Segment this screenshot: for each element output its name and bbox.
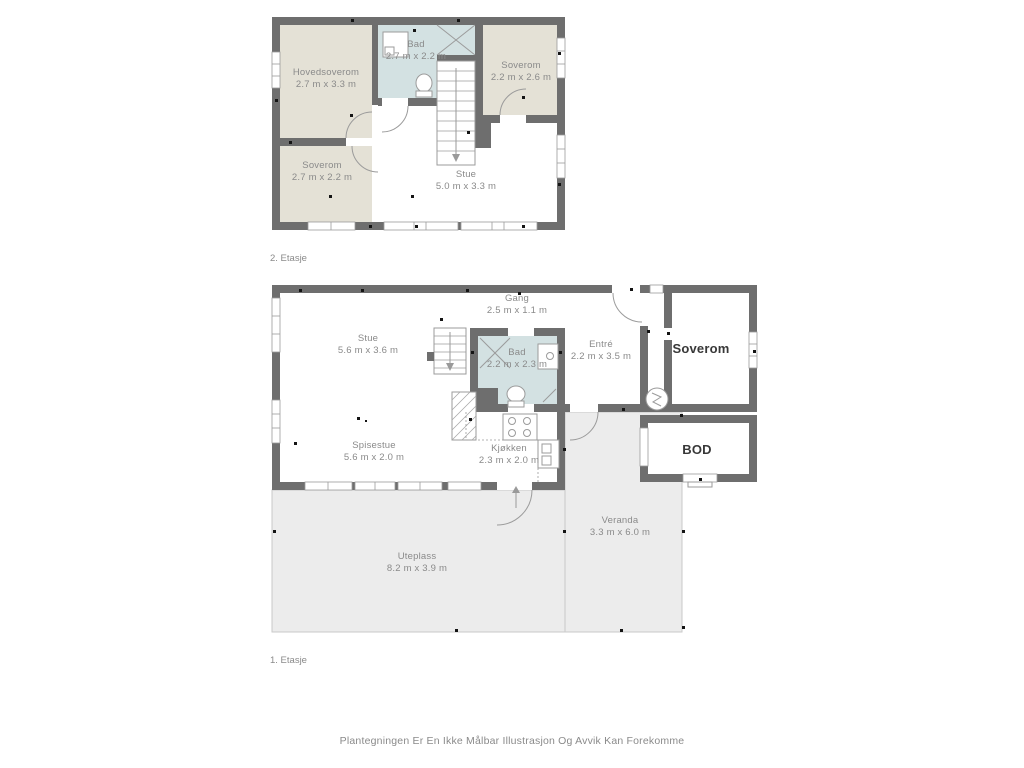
toilet-icon (416, 74, 432, 97)
floorplan-page: Hovedsoverom 2.7 m x 3.3 m Bad 2.7 m x 2… (0, 0, 1024, 768)
room-label-soverom-ne: Soverom 2.2 m x 2.6 m (491, 60, 551, 84)
room-label-kjokken: Kjøkken 2.3 m x 2.0 m (479, 443, 539, 467)
stairs-icon (437, 61, 475, 165)
room-label-entre: Entré 2.2 m x 3.5 m (571, 339, 631, 363)
room-label-bad-2: Bad 2.7 m x 2.2 m (386, 39, 446, 63)
room-soverom-sw (280, 146, 372, 222)
room-label-spisestue: Spisestue 5.6 m x 2.0 m (344, 440, 404, 464)
floorplan-graphics (0, 0, 1024, 768)
room-label-soverom-1: Soverom (672, 342, 729, 356)
sink-icon (538, 440, 559, 468)
room-label-gang: Gang 2.5 m x 1.1 m (487, 293, 547, 317)
room-label-bod: BOD (682, 443, 712, 457)
floor-caption-2: 2. Etasje (270, 253, 307, 264)
room-label-soverom-sw: Soverom 2.7 m x 2.2 m (292, 160, 352, 184)
floor-caption-1: 1. Etasje (270, 655, 307, 666)
room-label-bad-1: Bad 2.2 m x 2.3 m (487, 347, 547, 371)
room-label-veranda: Veranda 3.3 m x 6.0 m (590, 515, 650, 539)
room-label-uteplass: Uteplass 8.2 m x 3.9 m (387, 551, 447, 575)
room-label-hovedsoverom: Hovedsoverom 2.7 m x 3.3 m (293, 67, 359, 91)
hatch-area (452, 392, 476, 440)
disclaimer-text: Plantegningen Er En Ikke Målbar Illustra… (0, 735, 1024, 747)
room-label-stue-2: Stue 5.0 m x 3.3 m (436, 169, 496, 193)
room-label-stue-1: Stue 5.6 m x 3.6 m (338, 333, 398, 357)
stove-icon (503, 414, 537, 440)
water-heater-icon (646, 388, 668, 410)
toilet-icon (507, 386, 525, 407)
